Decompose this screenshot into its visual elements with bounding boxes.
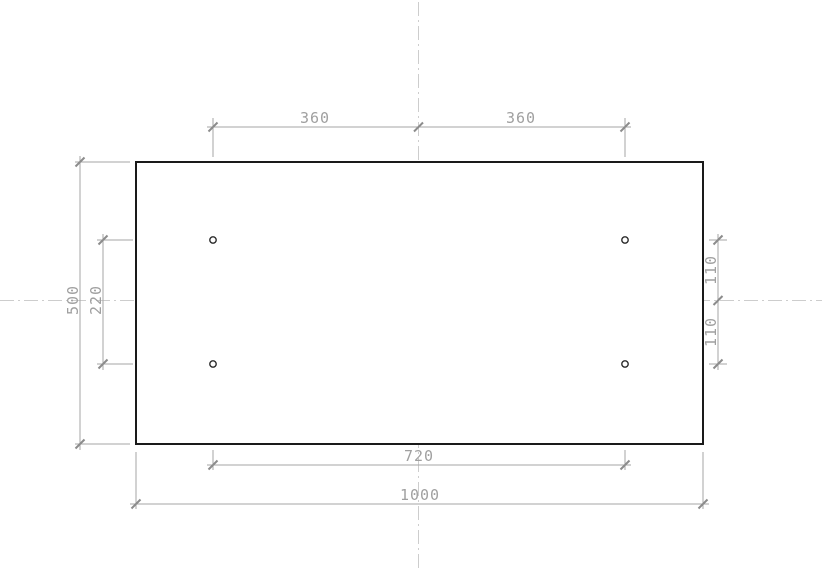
part-geometry (136, 162, 703, 444)
dimension-value: 1000 (400, 486, 440, 504)
dimension-value: 720 (404, 447, 434, 465)
dimension-right-110-pair: 110 110 (702, 234, 727, 370)
dimension-value: 110 (702, 255, 720, 285)
hole-bottom-right (622, 361, 628, 367)
dimension-value: 360 (300, 109, 330, 127)
dimension-value: 110 (702, 317, 720, 347)
hole-bottom-left (210, 361, 216, 367)
dimension-left-220: 220 (87, 234, 133, 370)
hole-top-left (210, 237, 216, 243)
plate-outline (136, 162, 703, 444)
drawing-page: 360 360 500 220 110 110 720 (0, 0, 822, 578)
hole-top-right (622, 237, 628, 243)
drawing-canvas: 360 360 500 220 110 110 720 (0, 0, 822, 578)
dimension-value: 220 (87, 285, 105, 315)
dimension-value: 360 (506, 109, 536, 127)
dimension-value: 500 (64, 285, 82, 315)
